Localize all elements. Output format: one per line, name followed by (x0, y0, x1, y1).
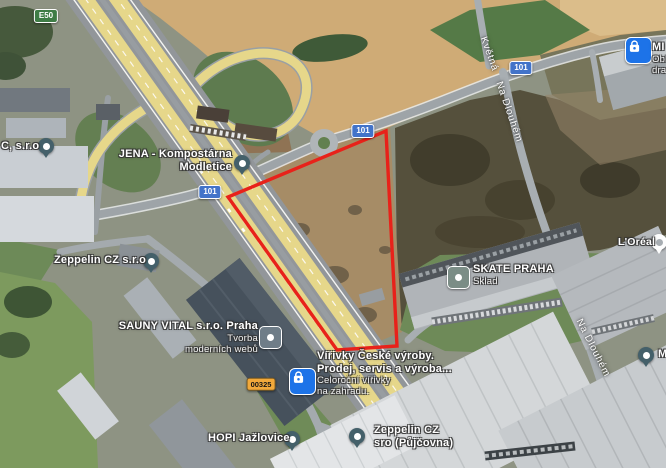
poi-label-line: Modletice (119, 161, 232, 174)
poi-sublabel: Celoroční vířivky (317, 375, 452, 386)
poi-pin-zeppelin-pujcovna[interactable] (349, 428, 365, 444)
map-base-art (0, 0, 666, 468)
poi-label-line: Prodej, servis a výroba... (317, 363, 452, 376)
poi-label-sauny[interactable]: SAUNY VITAL s.r.o. Praha Tvorba moderníc… (119, 320, 258, 355)
poi-label-zeppelin[interactable]: Zeppelin CZ s.r.o (54, 254, 146, 267)
road-badge-101-roundabout: 101 (351, 124, 374, 138)
poi-sublabel: Obl (652, 54, 666, 65)
road-badge-101-west: 101 (198, 185, 221, 199)
poi-label-hopi[interactable]: HOPI Jažlovice (208, 432, 290, 445)
business-square-icon-sauny[interactable] (259, 326, 282, 349)
road-badge-00325: 00325 (247, 378, 276, 391)
shopping-bag-icon-mi-store[interactable] (625, 37, 652, 64)
poi-sublabel: moderních webů (119, 344, 258, 355)
road-badge-101-crossroad: 101 (509, 61, 532, 75)
poi-label-zeppelin-pujcovna[interactable]: Zeppelin CZ sro (Půjčovna) (374, 424, 453, 449)
poi-label-mi-store[interactable]: MI Obl dra (652, 41, 666, 76)
poi-sublabel: Sklad (473, 276, 554, 287)
poi-label-line: Vířivky České výroby. (317, 350, 452, 363)
satellite-map[interactable]: E50 101 101 101 00325 Květná Na Dlouhém … (0, 0, 666, 468)
shopping-bag-glyph (290, 369, 307, 386)
poi-label-c-sro[interactable]: C, s.r.o (1, 140, 39, 153)
poi-label-line: MI (652, 41, 666, 54)
poi-pin-jena[interactable] (234, 155, 250, 171)
poi-label-m-edge[interactable]: M (658, 348, 666, 361)
shopping-bag-glyph (626, 38, 643, 55)
poi-label-line: SKATE PRAHA (473, 263, 554, 276)
poi-label-loreal[interactable]: L'Oréal (618, 236, 655, 249)
poi-pin-m-edge[interactable] (638, 347, 654, 363)
poi-label-virivky[interactable]: Vířivky České výroby. Prodej, servis a v… (317, 350, 452, 397)
poi-sublabel: na zahradu. (317, 386, 452, 397)
business-square-icon-skate[interactable] (447, 266, 470, 289)
poi-sublabel: Tvorba (119, 333, 258, 344)
poi-pin-c-sro[interactable] (38, 138, 54, 154)
poi-label-skate[interactable]: SKATE PRAHA Sklad (473, 263, 554, 287)
shopping-bag-icon-virivky[interactable] (289, 368, 316, 395)
road-badge-e50: E50 (34, 9, 58, 23)
poi-sublabel: dra (652, 65, 666, 76)
poi-label-line: sro (Půjčovna) (374, 437, 453, 450)
poi-label-line: SAUNY VITAL s.r.o. Praha (119, 320, 258, 333)
poi-label-jena[interactable]: JENA - Kompostárna Modletice (119, 148, 232, 173)
poi-label-line: Zeppelin CZ (374, 424, 453, 437)
poi-label-line: JENA - Kompostárna (119, 148, 232, 161)
